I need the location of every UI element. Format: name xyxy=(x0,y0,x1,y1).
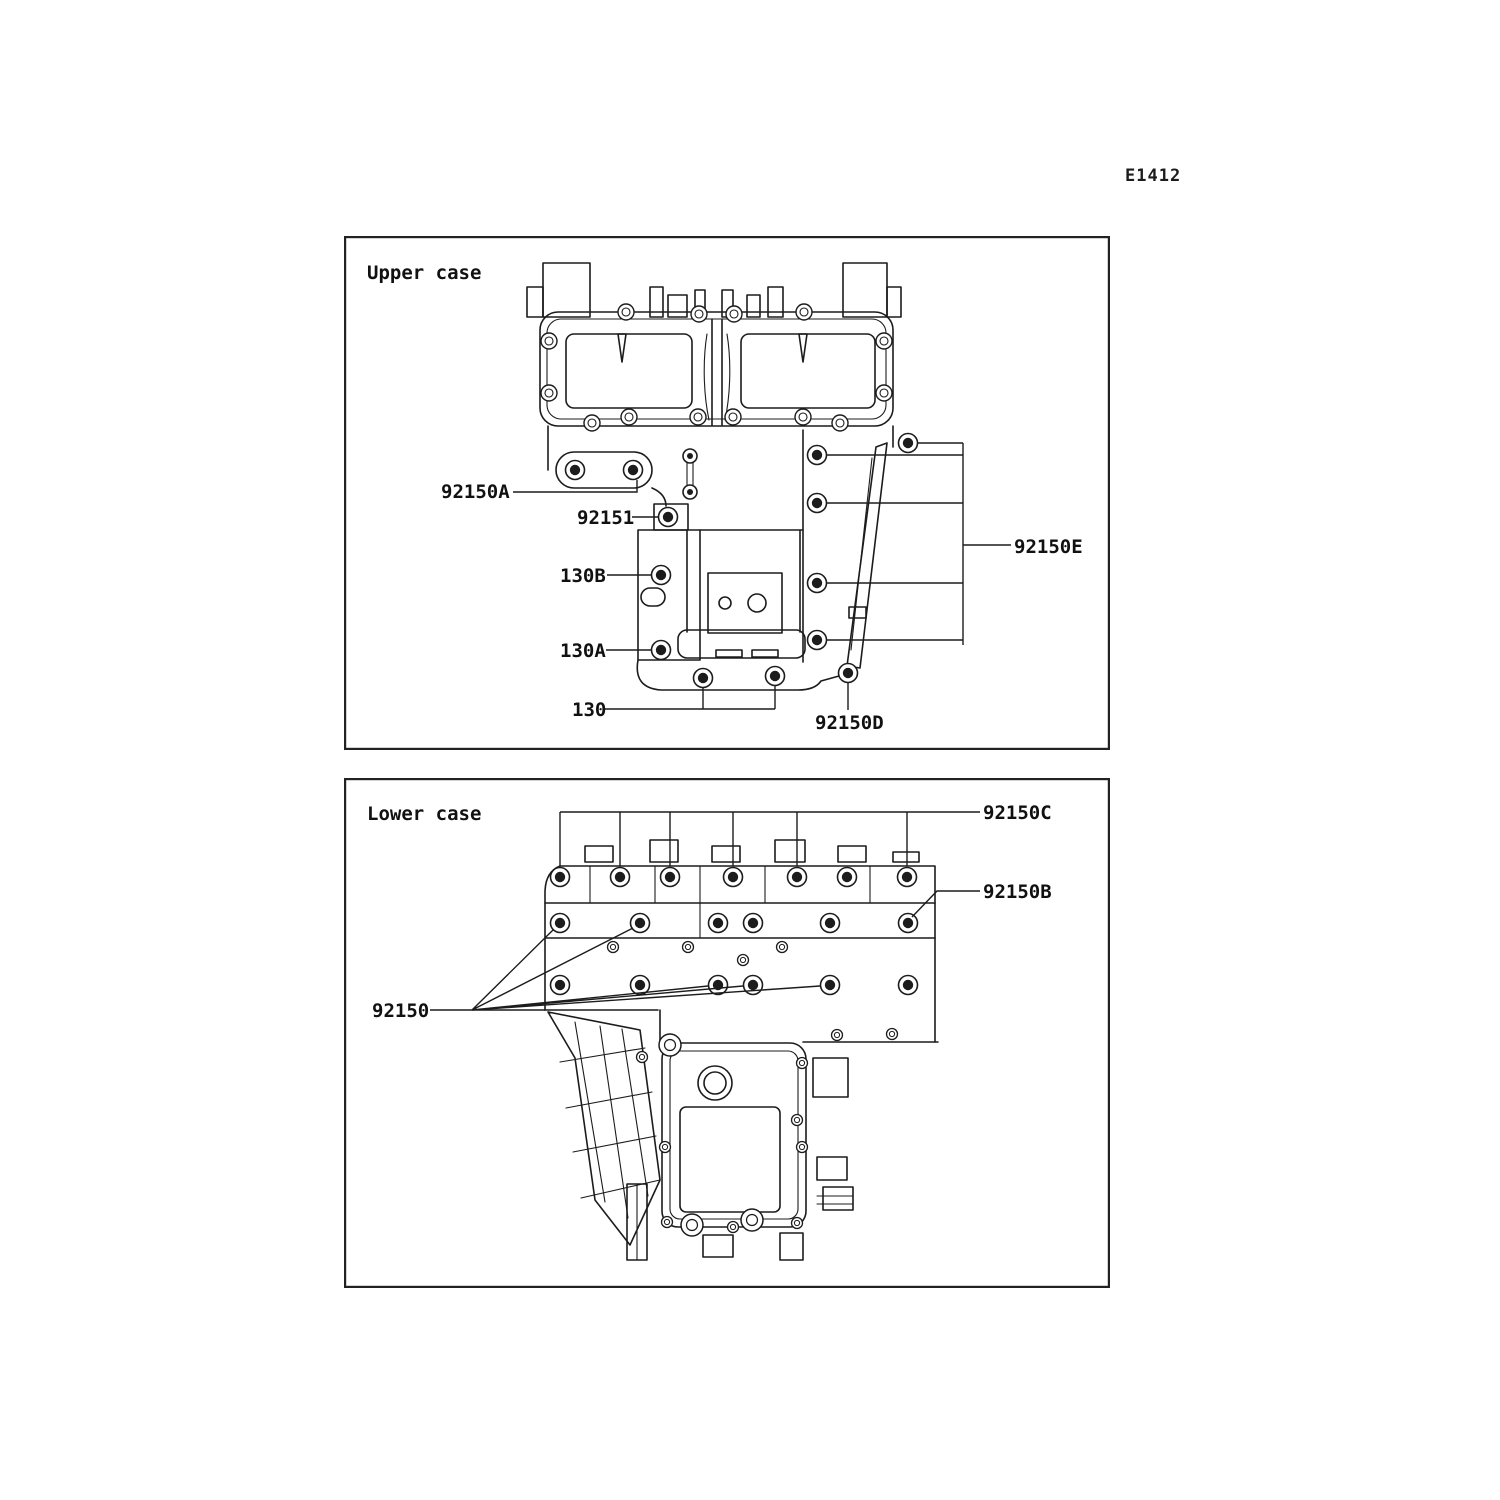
case-hole xyxy=(683,942,694,953)
upper-case-panel: Upper case xyxy=(344,236,1110,750)
part-label-92150B: 92150B xyxy=(983,881,1052,903)
gasket-hole xyxy=(584,415,600,431)
bolts-lower xyxy=(551,868,918,995)
pan-hole xyxy=(728,1222,739,1233)
bolt xyxy=(551,868,570,887)
crankcase-upper-drawing xyxy=(527,263,901,690)
bolt xyxy=(624,461,643,480)
bolt xyxy=(694,669,713,688)
case-hole xyxy=(887,1029,898,1040)
bolt xyxy=(788,868,807,887)
pan-hole xyxy=(660,1142,671,1153)
gasket-hole xyxy=(725,409,741,425)
bolt xyxy=(566,461,585,480)
gasket-hole xyxy=(726,306,742,322)
bolt xyxy=(709,914,728,933)
bolt xyxy=(611,868,630,887)
bolt xyxy=(839,664,858,683)
gasket-hole xyxy=(618,304,634,320)
bolt xyxy=(821,914,840,933)
bolt xyxy=(659,508,678,527)
part-label-130: 130 xyxy=(572,699,606,721)
case-hole xyxy=(777,942,788,953)
gasket-hole xyxy=(541,385,557,401)
case-hole xyxy=(608,942,619,953)
gasket-hole xyxy=(796,304,812,320)
part-label-130A: 130A xyxy=(560,640,606,662)
bolt xyxy=(652,566,671,585)
upper-panel-title: Upper case xyxy=(367,262,481,284)
gasket-hole xyxy=(795,409,811,425)
bolt xyxy=(551,976,570,995)
pan-hole xyxy=(637,1052,648,1063)
bolt xyxy=(766,667,785,686)
pan-hole xyxy=(792,1115,803,1126)
part-label-92150E: 92150E xyxy=(1014,536,1083,558)
bolt xyxy=(808,494,827,513)
pan-hole xyxy=(797,1142,808,1153)
lower-case-panel: Lower case xyxy=(344,778,1110,1288)
gasket-hole xyxy=(876,385,892,401)
pan-hole xyxy=(681,1214,703,1236)
crankcase-lower-drawing xyxy=(545,840,938,1260)
leader-lines-lower xyxy=(430,812,980,1010)
bolt xyxy=(631,914,650,933)
part-label-92150A: 92150A xyxy=(441,481,510,503)
case-hole xyxy=(738,955,749,966)
catalog-page: E1412 Upper case xyxy=(0,0,1500,1500)
bolt xyxy=(709,976,728,995)
gasket-hole xyxy=(691,306,707,322)
lower-panel-title: Lower case xyxy=(367,803,481,825)
bolt xyxy=(899,914,918,933)
part-label-92150C: 92150C xyxy=(983,802,1052,824)
bolt xyxy=(899,434,918,453)
gasket-hole xyxy=(541,333,557,349)
part-label-92150D: 92150D xyxy=(815,712,884,734)
bolt xyxy=(808,574,827,593)
bolt xyxy=(821,976,840,995)
bolt xyxy=(808,631,827,650)
gasket-hole xyxy=(621,409,637,425)
pan-hole xyxy=(659,1034,681,1056)
bolt xyxy=(898,868,917,887)
part-label-92151: 92151 xyxy=(577,507,634,529)
pan-hole xyxy=(662,1217,673,1228)
pan-hole xyxy=(741,1209,763,1231)
bolt xyxy=(838,868,857,887)
case-hole xyxy=(832,1030,843,1041)
bolt xyxy=(808,446,827,465)
part-label-130B: 130B xyxy=(560,565,606,587)
part-label-92150: 92150 xyxy=(372,1000,429,1022)
gasket-hole xyxy=(876,333,892,349)
bolt xyxy=(744,914,763,933)
lower-panel-border xyxy=(345,779,1109,1287)
bolt xyxy=(551,914,570,933)
bolt xyxy=(652,641,671,660)
gasket-holes-upper xyxy=(541,304,892,431)
bolt xyxy=(661,868,680,887)
pan-hole xyxy=(797,1058,808,1069)
pan-hole xyxy=(792,1218,803,1229)
gasket-hole xyxy=(690,409,706,425)
bolt xyxy=(724,868,743,887)
bolt xyxy=(899,976,918,995)
part-labels-upper: 92150A 92151 130B 130A 130 92150D 92150E xyxy=(441,481,1083,734)
gasket-hole xyxy=(832,415,848,431)
page-code: E1412 xyxy=(1125,166,1181,186)
